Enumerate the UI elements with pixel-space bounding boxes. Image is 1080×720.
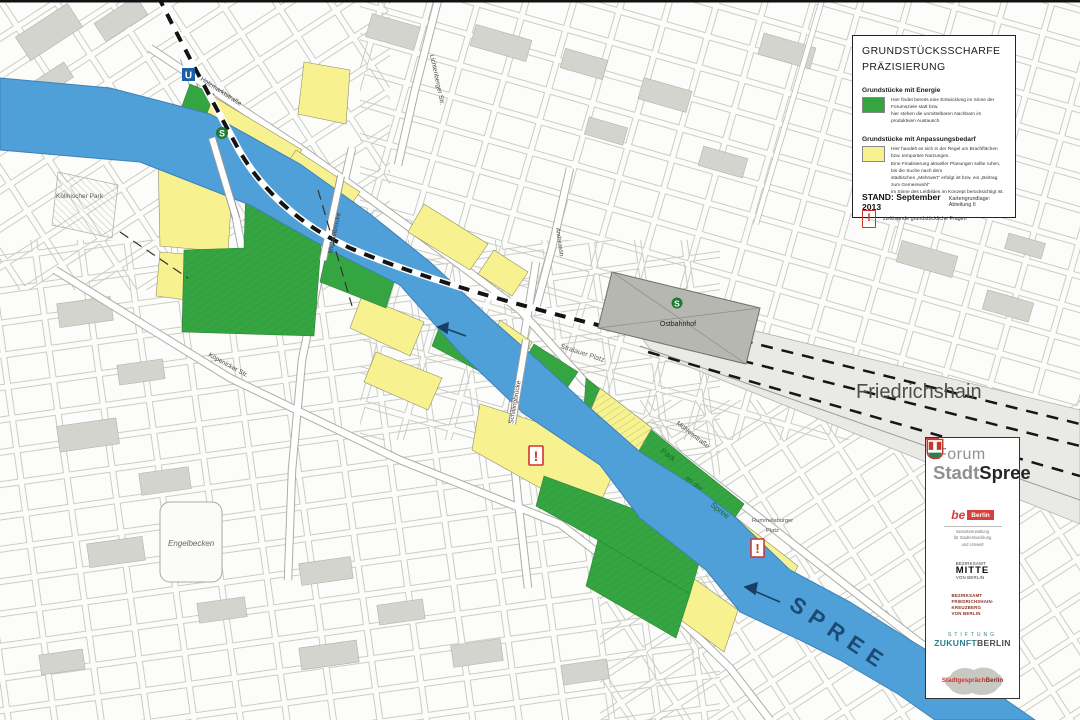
district-label: Friedrichshain [856, 381, 982, 403]
exclamation-icon: ! [862, 210, 876, 228]
svg-text:Engelbecken: Engelbecken [168, 539, 215, 548]
sbahn-symbol-jannowitz: S [216, 127, 228, 139]
legend-footer: STAND: September 2013 Kartengrundlage: A… [862, 192, 1009, 212]
ubahn-symbol: U [182, 68, 195, 82]
bezirksamt-fk-logo: BEZIRKSAMT FRIEDRICHSHAIN- KREUZBERG VON… [932, 593, 1013, 617]
legend-date: STAND: September 2013 [862, 192, 949, 212]
legend-panel: GRUNDSTÜCKSSCHARFE PRÄZISIERUNG Grundstü… [852, 35, 1016, 218]
legend-yellow-swatch [862, 146, 885, 162]
svg-text:S: S [674, 298, 680, 308]
legend-yellow-heading: Grundstücke mit Anpassungsbedarf [862, 136, 1007, 143]
forum-stadtspree-panel: Forum StadtSpree be Berlin Senatsverwalt… [925, 437, 1020, 699]
svg-text:!: ! [534, 448, 539, 464]
svg-text:Ostbahnhof: Ostbahnhof [660, 321, 696, 328]
svg-text:Platz: Platz [766, 528, 779, 534]
svg-text:Köllnischer Park: Köllnischer Park [56, 193, 104, 200]
svg-text:S: S [219, 129, 225, 139]
sbahn-symbol-ostbahnhof: S [672, 298, 683, 309]
legend-green-entry: Hier findet bereits eine Entwicklung im … [862, 97, 1007, 126]
legend-green-heading: Grundstücke mit Energie [862, 87, 1007, 94]
legend-yellow-desc: Hier handelt es sich in der Regel um Bra… [891, 146, 1007, 196]
scan-edge [0, 0, 1080, 3]
issue-marker-2: ! [751, 539, 764, 557]
legend-green-swatch [862, 97, 885, 113]
svg-text:U: U [185, 71, 192, 82]
stiftung-zukunft-berlin-logo: STIFTUNG ZUKUNFTBERLIN [932, 632, 1013, 648]
senate-caption: Senatsverwaltung für Stadtentwicklung un… [944, 526, 1002, 548]
fk-coat-of-arms-icon [926, 438, 944, 460]
legend-source: Kartengrundlage: Abteilung II [949, 196, 1009, 208]
issue-marker-1: ! [529, 446, 543, 465]
forum-title-line2: StadtSpree [933, 462, 1013, 484]
legend-yellow-entry: Hier handelt es sich in der Regel um Bra… [862, 146, 1007, 196]
legend-green-desc: Hier findet bereits eine Entwicklung im … [891, 97, 1007, 126]
be-berlin-logo: be Berlin Senatsverwaltung für Stadtentw… [932, 508, 1013, 548]
stadtgespraech-berlin-logo: StadtgesprächBerlin [932, 664, 1013, 698]
bezirksamt-mitte-logo: BEZIRKSAMT MITTE VON BERLIN [932, 561, 1013, 581]
map-sheet: U S S ! ! Friedrichshain SPREE Ostbahnho… [0, 0, 1080, 720]
svg-text:!: ! [755, 541, 759, 556]
svg-text:Rummelsburger: Rummelsburger [752, 518, 793, 524]
legend-exclamation-entry: ! zu lösende grundstückliche Fragen [862, 210, 1007, 228]
legend-title: GRUNDSTÜCKSSCHARFE PRÄZISIERUNG [862, 44, 1007, 76]
